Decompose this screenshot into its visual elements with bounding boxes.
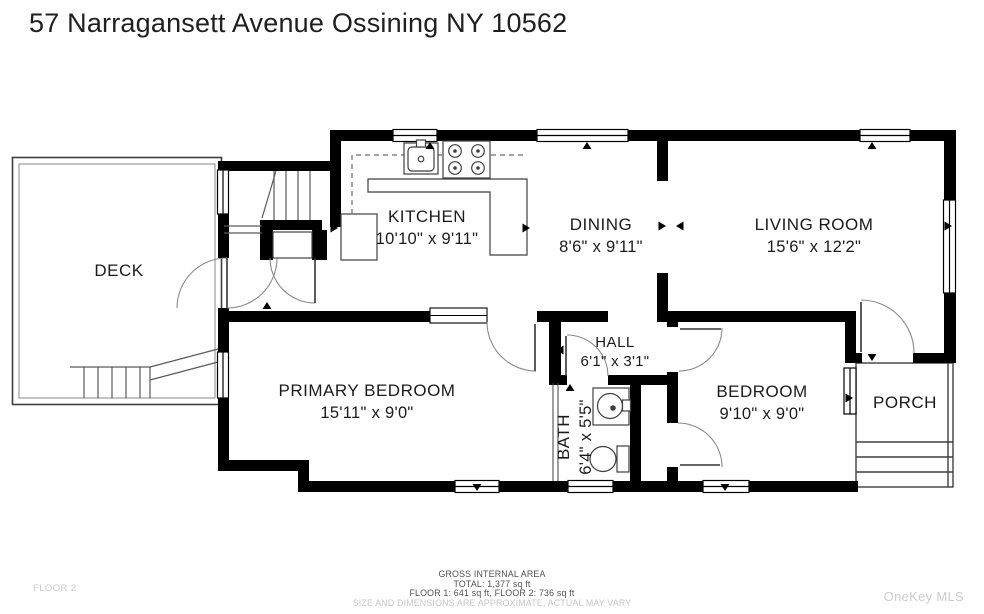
deck-door — [177, 258, 277, 308]
bedroom-door — [679, 328, 722, 371]
room-label-hall: HALL 6'1" x 3'1" — [581, 333, 650, 371]
floor-plan-drawing — [0, 0, 984, 614]
sliding-closet-door — [430, 308, 487, 323]
deck-stairs — [70, 349, 218, 398]
room-label-primary-bedroom: PRIMARY BEDROOM 15'11" x 9'0" — [279, 380, 456, 424]
room-label-living-room: LIVING ROOM 15'6" x 12'2" — [755, 214, 874, 258]
mls-watermark: OneKey MLS — [884, 589, 964, 604]
bathroom-sink — [593, 388, 631, 425]
front-door — [861, 300, 914, 353]
room-label-dining: DINING 8'6" x 9'11" — [559, 214, 643, 258]
floor-plan-page: 57 Narragansett Avenue Ossining NY 10562 — [0, 0, 984, 614]
room-label-deck: DECK — [94, 260, 143, 282]
room-label-kitchen: KITCHEN 10'10" x 9'11" — [376, 206, 479, 250]
room-label-bedroom: BEDROOM 9'10" x 9'0" — [716, 381, 807, 425]
door-arcs — [177, 258, 914, 467]
porch-outline — [856, 363, 953, 487]
room-label-bath: BATH 6'4" x 5'5" — [553, 399, 597, 474]
disclaimer-text: SIZE AND DIMENSIONS ARE APPROXIMATE, ACT… — [0, 599, 984, 609]
gross-area-block: GROSS INTERNAL AREA TOTAL: 1,377 sq ft F… — [0, 570, 984, 608]
room-label-porch: PORCH — [873, 392, 937, 414]
bedroom-closet-door — [678, 423, 722, 467]
kitchen-sink — [404, 140, 438, 174]
stove — [443, 141, 490, 178]
primary-bedroom-door — [487, 322, 536, 371]
